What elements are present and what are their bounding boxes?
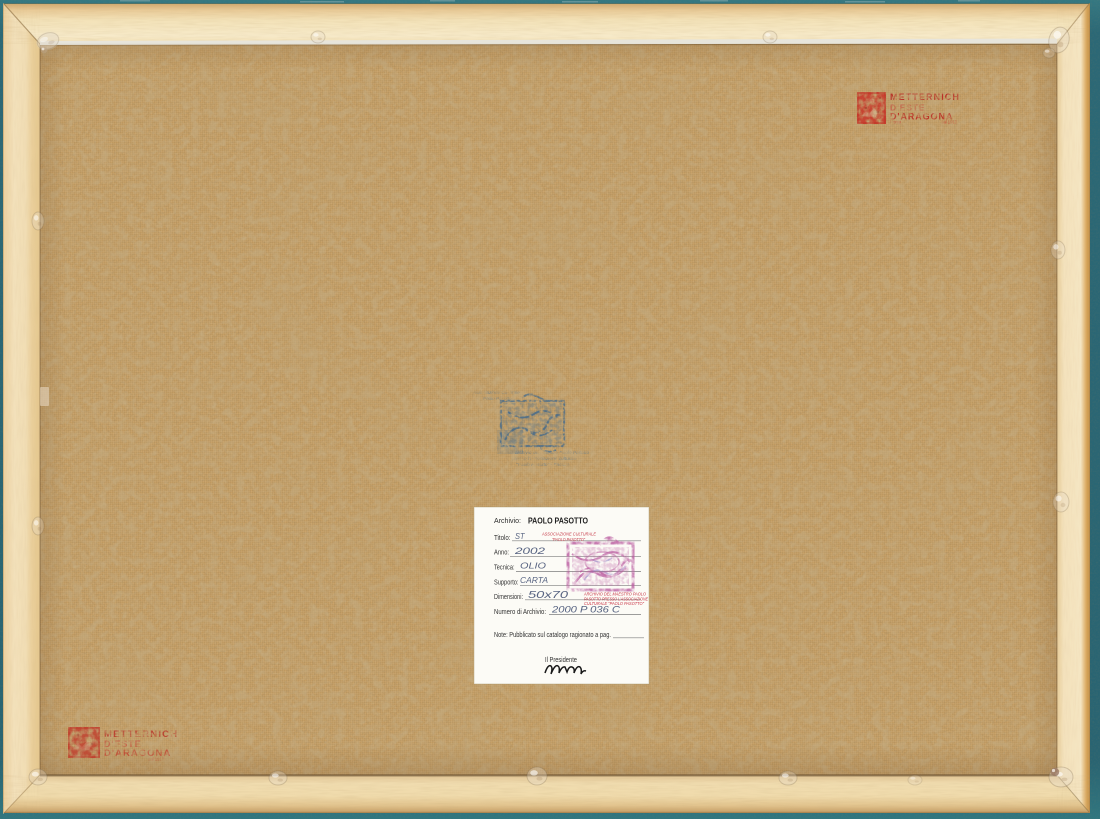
svg-text:CARTA: CARTA (520, 575, 548, 585)
svg-text:OLIO: OLIO (520, 561, 546, 571)
svg-text:Note: Pubblicato sul catalogo: Note: Pubblicato sul catalogo ragionato … (494, 632, 611, 639)
svg-text:ASSOCIAZIONE CULTURALE: ASSOCIAZIONE CULTURALE (541, 532, 597, 537)
svg-text:2002: 2002 (514, 546, 546, 557)
svg-text:ST: ST (515, 532, 526, 541)
svg-text:PAOLO PASOTTO: PAOLO PASOTTO (528, 516, 588, 526)
svg-text:dal 1913: dal 1913 (941, 120, 958, 125)
svg-text:Paolo Pasotto: Paolo Pasotto (483, 396, 512, 401)
svg-text:METTERNICH: METTERNICH (890, 92, 960, 102)
svg-text:Titolo:: Titolo: (494, 535, 511, 542)
svg-text:50x70: 50x70 (528, 589, 568, 601)
svg-text:Dimensioni:: Dimensioni: (494, 594, 523, 601)
svg-text:CULTURALE "PAOLO PASOTTO": CULTURALE "PAOLO PASOTTO" (584, 601, 644, 606)
svg-text:"Paolo Pasotto" - Faenza: "Paolo Pasotto" - Faenza (516, 462, 570, 468)
svg-text:presso l'associazione cultural: presso l'associazione culturale (511, 456, 577, 462)
svg-text:archivio del maestro Paolo Pas: archivio del maestro Paolo Pasotto (515, 450, 589, 456)
svg-text:Supporto:: Supporto: (494, 579, 519, 586)
svg-text:Roma: Roma (890, 120, 902, 125)
svg-text:Numero di Archivio:: Numero di Archivio: (494, 609, 546, 616)
svg-text:dal 1913: dal 1913 (148, 757, 165, 762)
svg-text:Il Presidente: Il Presidente (545, 657, 577, 664)
svg-text:Archivio:: Archivio: (494, 516, 521, 525)
svg-text:Associazione Culturale: Associazione Culturale (472, 390, 520, 395)
svg-text:Tecnica:: Tecnica: (494, 565, 515, 572)
svg-text:Anno:: Anno: (494, 550, 509, 557)
svg-text:"PAOLO PASOTTO": "PAOLO PASOTTO" (552, 537, 585, 542)
